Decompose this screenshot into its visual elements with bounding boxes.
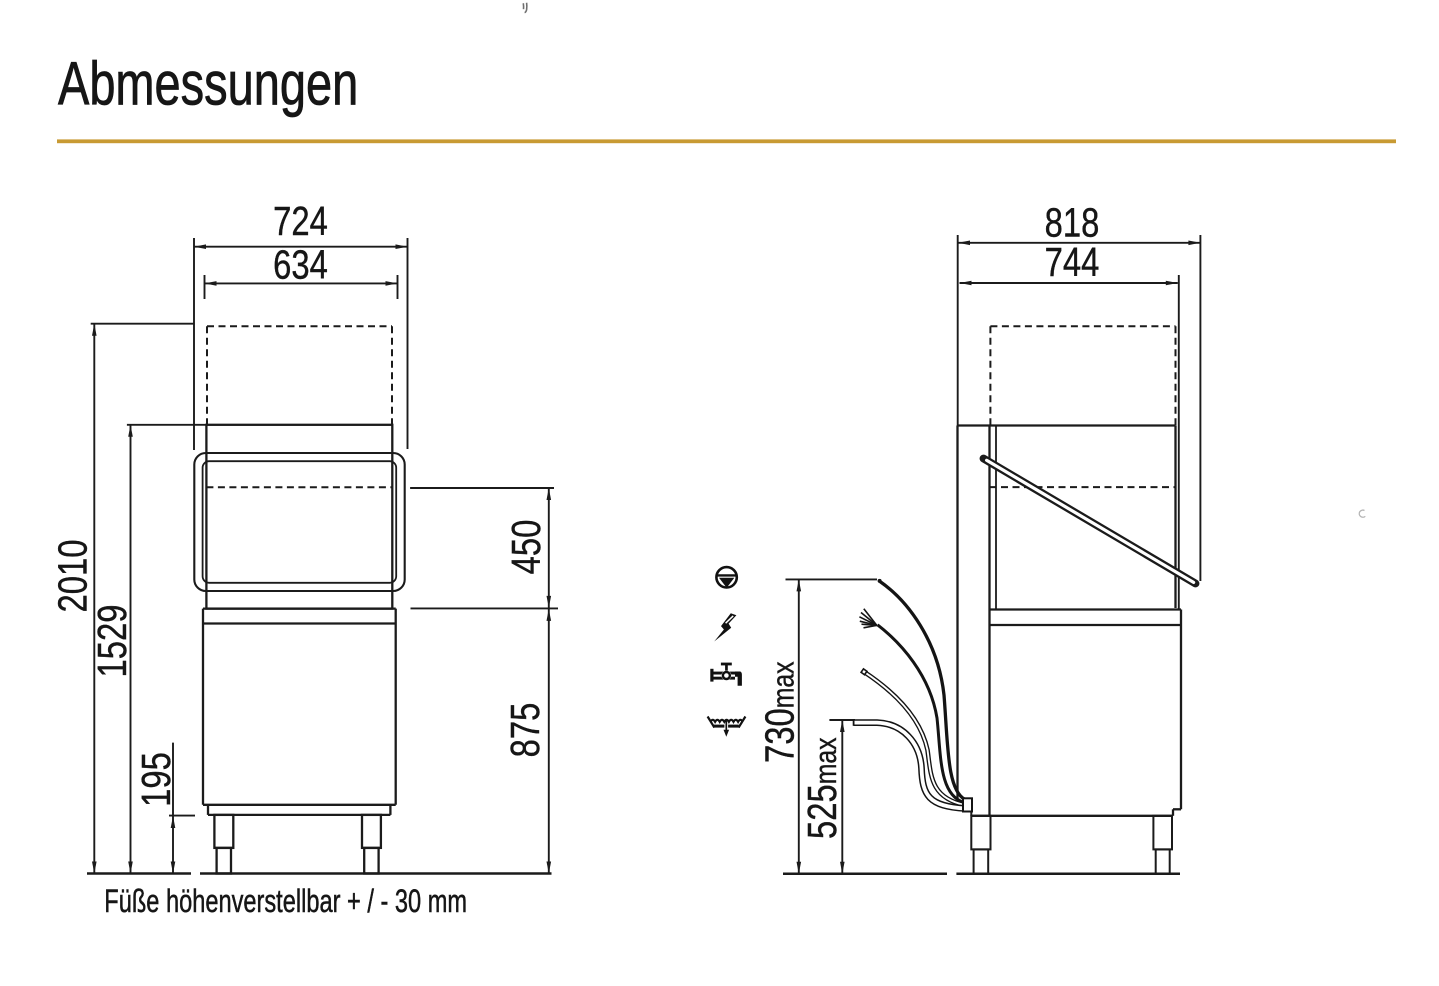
svg-text:875: 875: [501, 703, 547, 758]
svg-text:195: 195: [132, 752, 178, 807]
svg-text:744: 744: [1045, 238, 1100, 284]
svg-text:Füße höhenverstellbar + / - 30: Füße höhenverstellbar + / - 30 mm: [104, 884, 467, 919]
svg-text:Abmessungen: Abmessungen: [58, 49, 358, 117]
svg-text:724: 724: [273, 197, 328, 243]
svg-text:450: 450: [502, 520, 548, 575]
svg-text:2010: 2010: [49, 540, 95, 613]
svg-text:634: 634: [273, 241, 328, 287]
svg-text:1529: 1529: [88, 605, 134, 678]
